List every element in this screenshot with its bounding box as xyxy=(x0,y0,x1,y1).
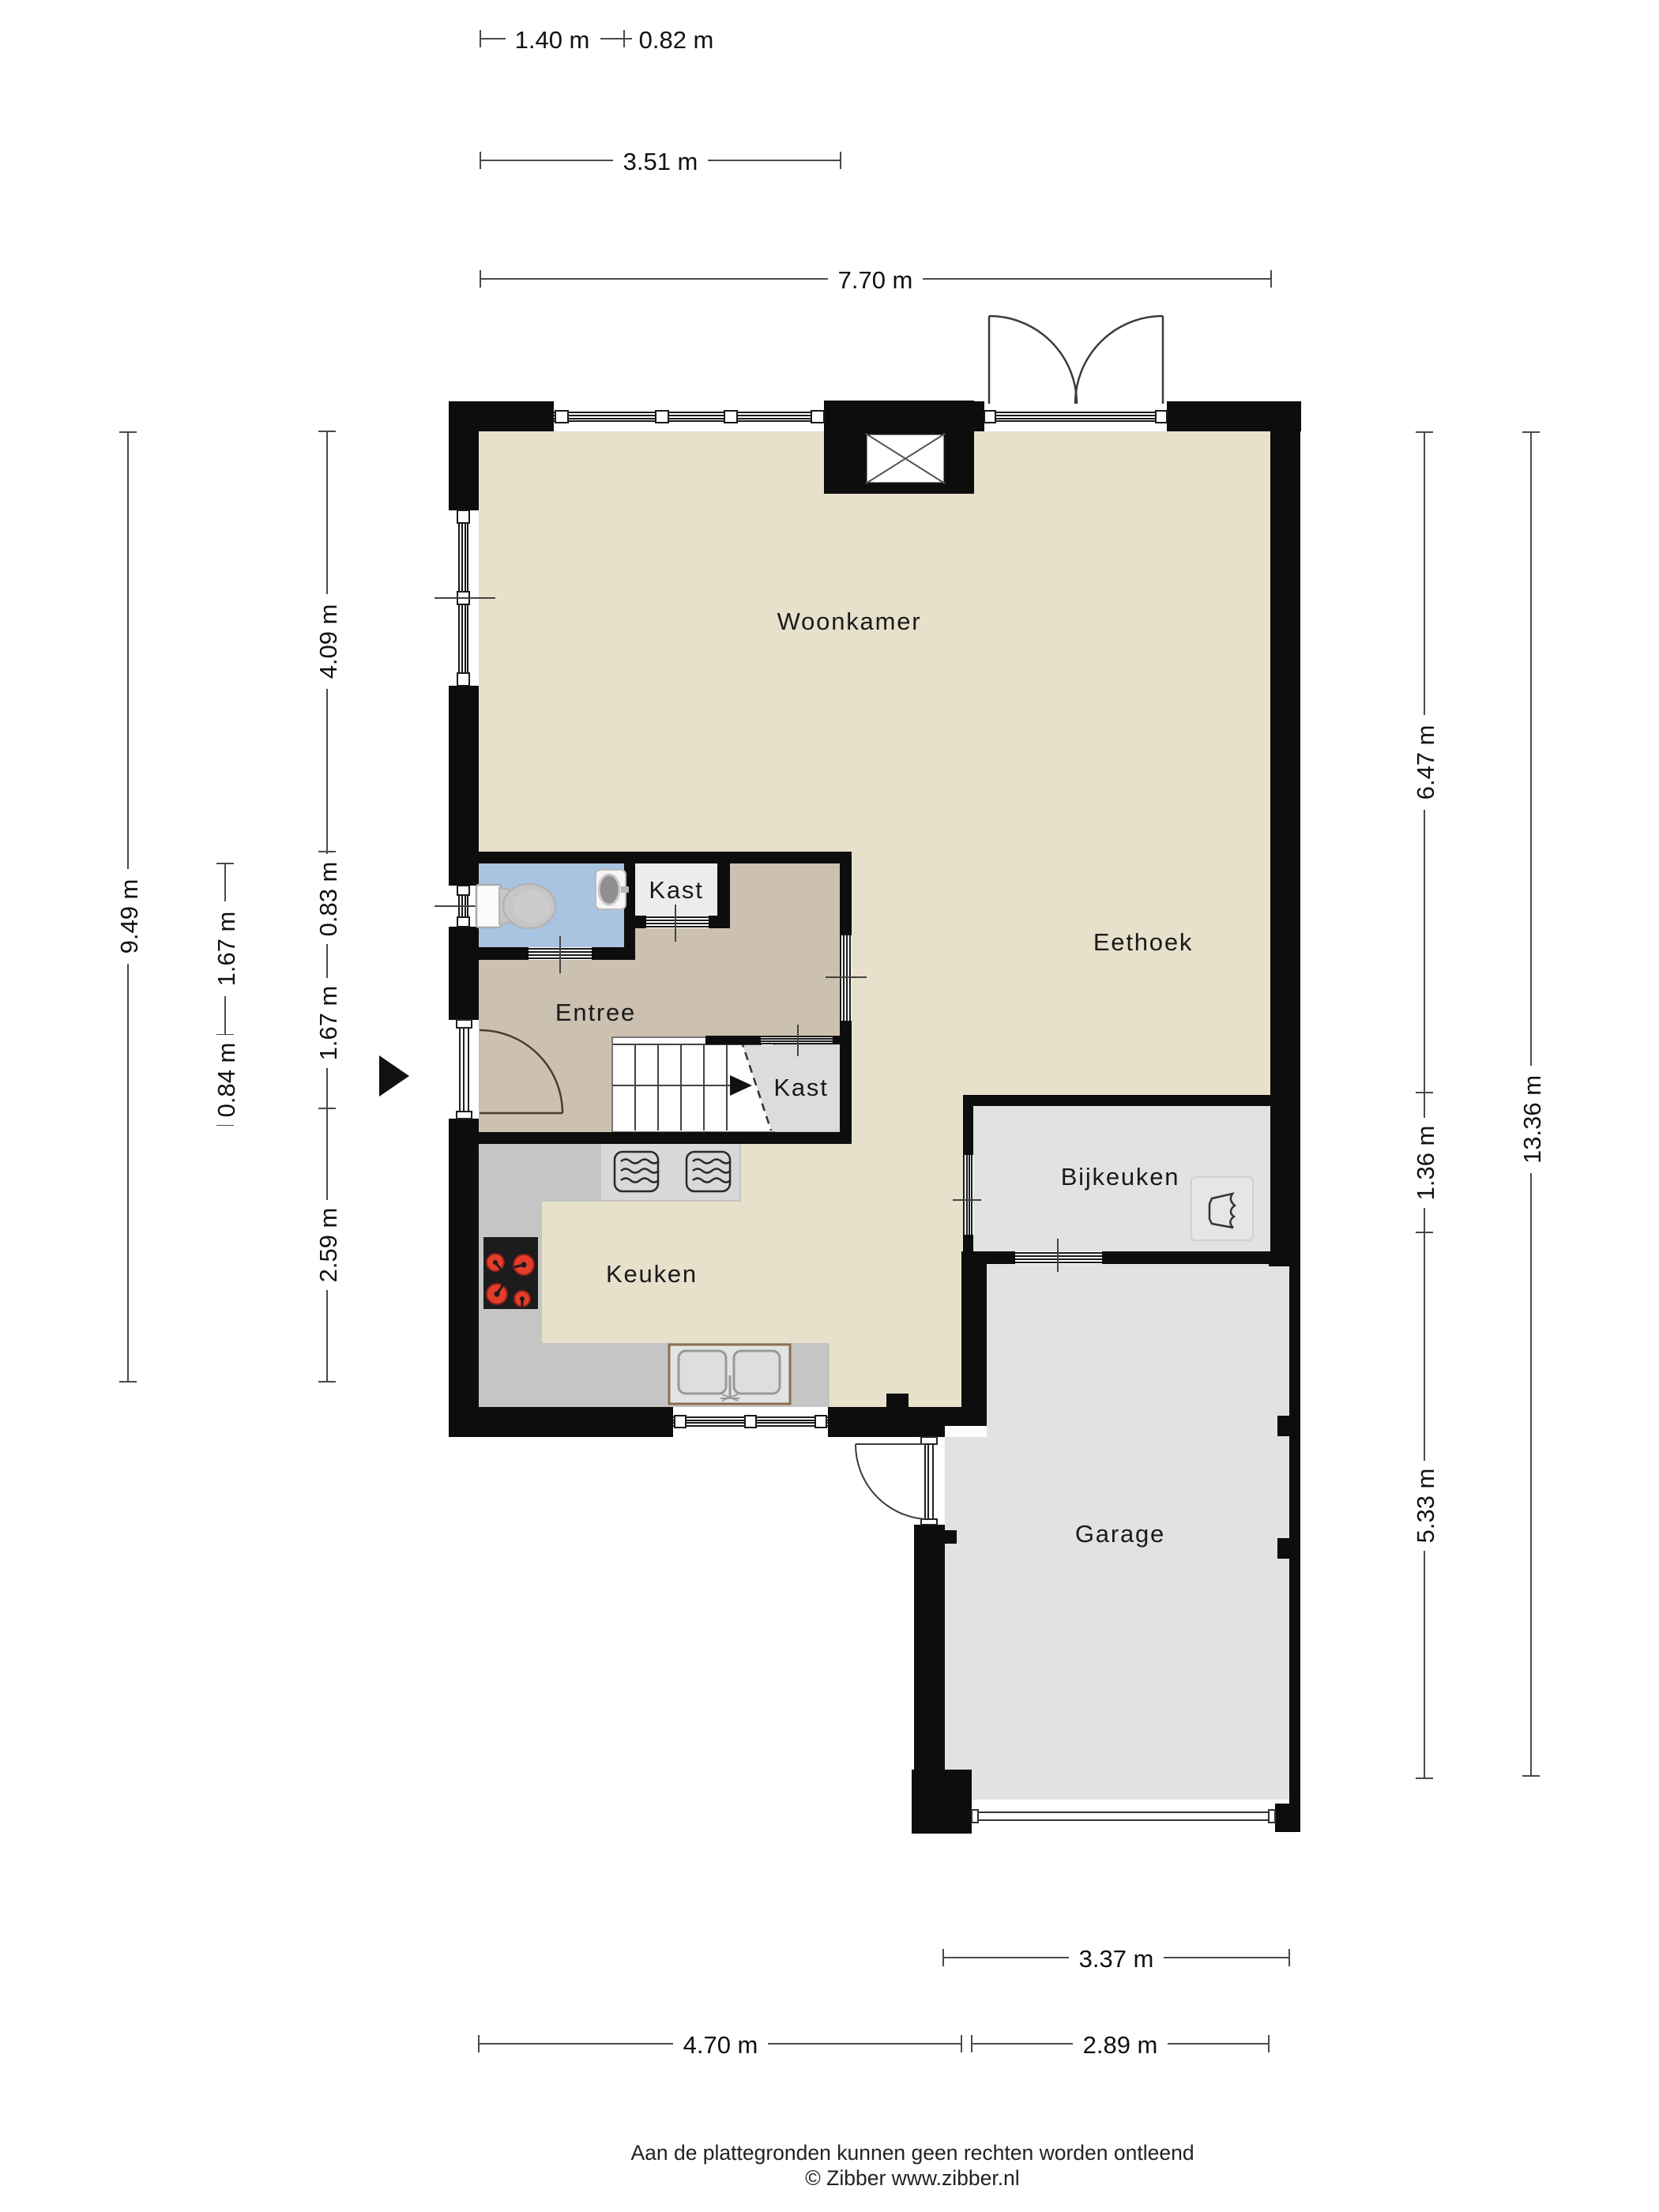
svg-text:9.49 m: 9.49 m xyxy=(115,879,143,954)
svg-text:Woonkamer: Woonkamer xyxy=(777,608,922,635)
svg-text:Bijkeuken: Bijkeuken xyxy=(1061,1163,1180,1191)
svg-text:Kast: Kast xyxy=(649,876,703,904)
svg-text:3.51 m: 3.51 m xyxy=(623,148,698,175)
svg-text:1.67 m: 1.67 m xyxy=(213,912,240,987)
svg-text:Aan de plattegronden kunnen ge: Aan de plattegronden kunnen geen rechten… xyxy=(630,2141,1194,2165)
svg-text:4.70 m: 4.70 m xyxy=(683,2031,758,2059)
svg-text:Entree: Entree xyxy=(555,999,636,1026)
svg-text:0.84 m: 0.84 m xyxy=(213,1043,240,1118)
svg-text:7.70 m: 7.70 m xyxy=(838,266,913,294)
svg-text:1.67 m: 1.67 m xyxy=(314,986,342,1061)
svg-text:Garage: Garage xyxy=(1075,1520,1165,1548)
svg-text:Eethoek: Eethoek xyxy=(1093,928,1193,956)
svg-text:13.36 m: 13.36 m xyxy=(1518,1075,1546,1164)
svg-text:6.47 m: 6.47 m xyxy=(1412,725,1439,800)
svg-text:5.33 m: 5.33 m xyxy=(1412,1469,1439,1544)
svg-text:0.82 m: 0.82 m xyxy=(639,26,714,54)
svg-text:2.59 m: 2.59 m xyxy=(314,1208,342,1283)
svg-text:2.89 m: 2.89 m xyxy=(1083,2031,1158,2059)
svg-text:1.36 m: 1.36 m xyxy=(1412,1126,1439,1201)
svg-text:0.83 m: 0.83 m xyxy=(314,862,342,937)
svg-text:Kast: Kast xyxy=(773,1074,828,1101)
svg-text:3.37 m: 3.37 m xyxy=(1079,1945,1154,1973)
svg-text:4.09 m: 4.09 m xyxy=(314,604,342,679)
svg-text:© Zibber www.zibber.nl: © Zibber www.zibber.nl xyxy=(805,2166,1019,2190)
svg-text:1.40 m: 1.40 m xyxy=(515,26,590,54)
svg-text:Keuken: Keuken xyxy=(606,1260,698,1288)
